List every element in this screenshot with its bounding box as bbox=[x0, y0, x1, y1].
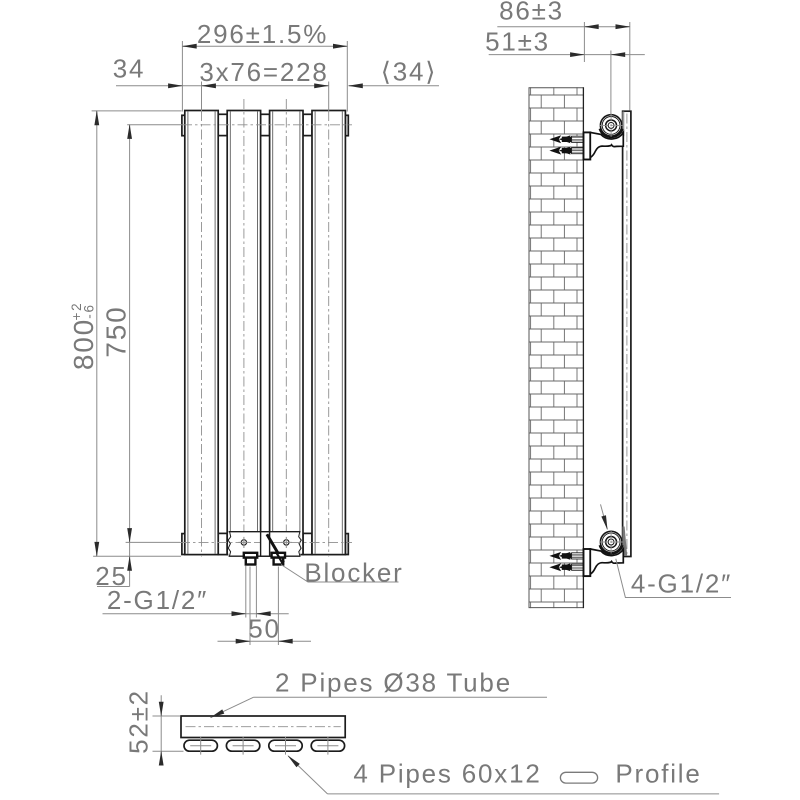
svg-text:4 Pipes 60x12: 4 Pipes 60x12 bbox=[353, 759, 541, 789]
svg-text:51±3: 51±3 bbox=[485, 27, 550, 57]
svg-text:Profile: Profile bbox=[615, 759, 701, 789]
svg-text:⟨34⟩: ⟨34⟩ bbox=[381, 57, 437, 87]
svg-text:4-G1/2″: 4-G1/2″ bbox=[631, 569, 732, 599]
svg-text:2 Pipes Ø38 Tube: 2 Pipes Ø38 Tube bbox=[275, 668, 512, 698]
svg-text:296±1.5%: 296±1.5% bbox=[197, 19, 328, 49]
svg-text:800: 800 bbox=[68, 318, 99, 370]
svg-text:Blocker: Blocker bbox=[304, 558, 403, 588]
svg-text:3x76=228: 3x76=228 bbox=[199, 57, 328, 87]
svg-text:750: 750 bbox=[101, 305, 132, 357]
svg-text:86±3: 86±3 bbox=[499, 0, 564, 26]
svg-text:2-G1/2″: 2-G1/2″ bbox=[107, 585, 208, 615]
svg-text:50: 50 bbox=[248, 614, 281, 644]
svg-text:-6: -6 bbox=[82, 303, 97, 319]
svg-text:52±2: 52±2 bbox=[124, 689, 154, 754]
svg-text:34: 34 bbox=[113, 54, 146, 84]
